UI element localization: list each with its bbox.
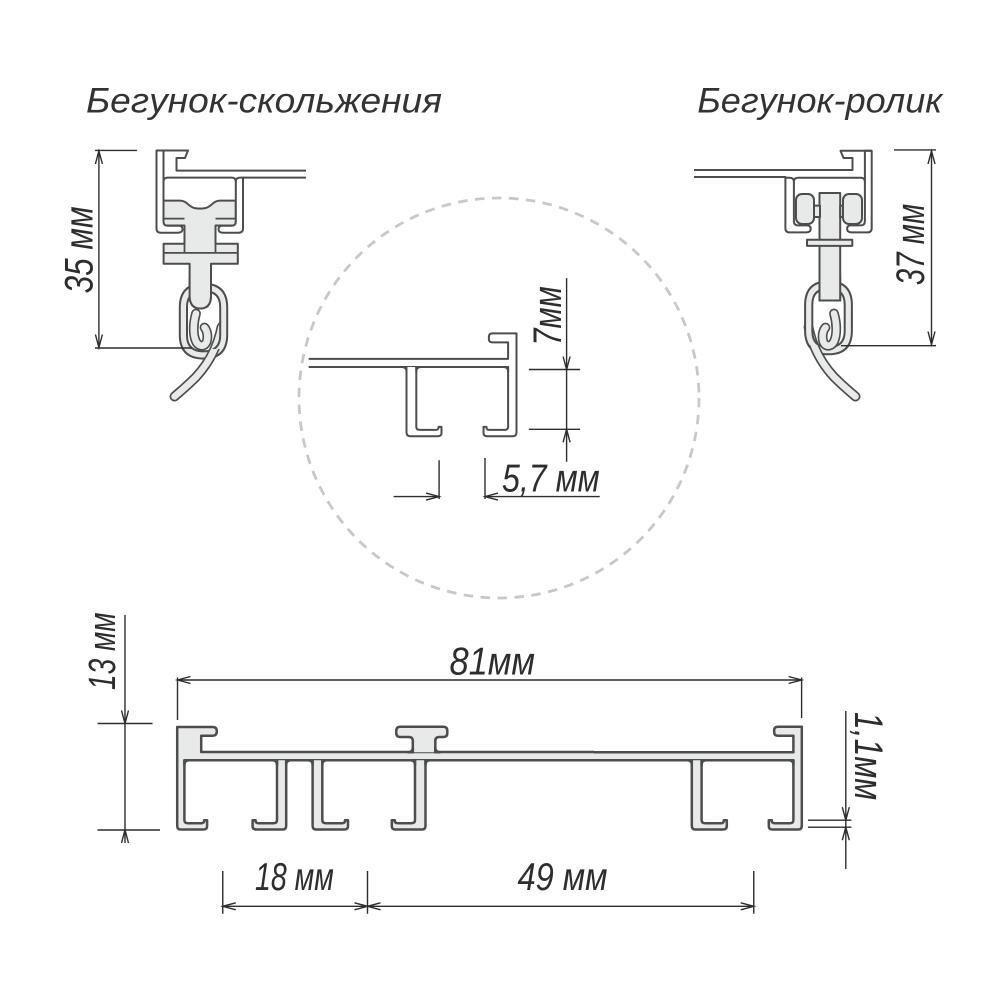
svg-text:Бегунок-ролик: Бегунок-ролик: [697, 81, 943, 121]
svg-text:13 мм: 13 мм: [82, 613, 124, 691]
svg-text:1,1мм: 1,1мм: [846, 712, 890, 800]
svg-text:35 мм: 35 мм: [57, 206, 101, 293]
svg-text:81мм: 81мм: [450, 641, 536, 684]
svg-text:5,7 мм: 5,7 мм: [502, 457, 600, 500]
svg-text:Бегунок-скольжения: Бегунок-скольжения: [86, 81, 442, 121]
svg-text:49 мм: 49 мм: [518, 856, 608, 899]
svg-text:18 мм: 18 мм: [255, 856, 334, 899]
svg-text:7мм: 7мм: [526, 286, 570, 345]
svg-text:37 мм: 37 мм: [889, 204, 933, 285]
